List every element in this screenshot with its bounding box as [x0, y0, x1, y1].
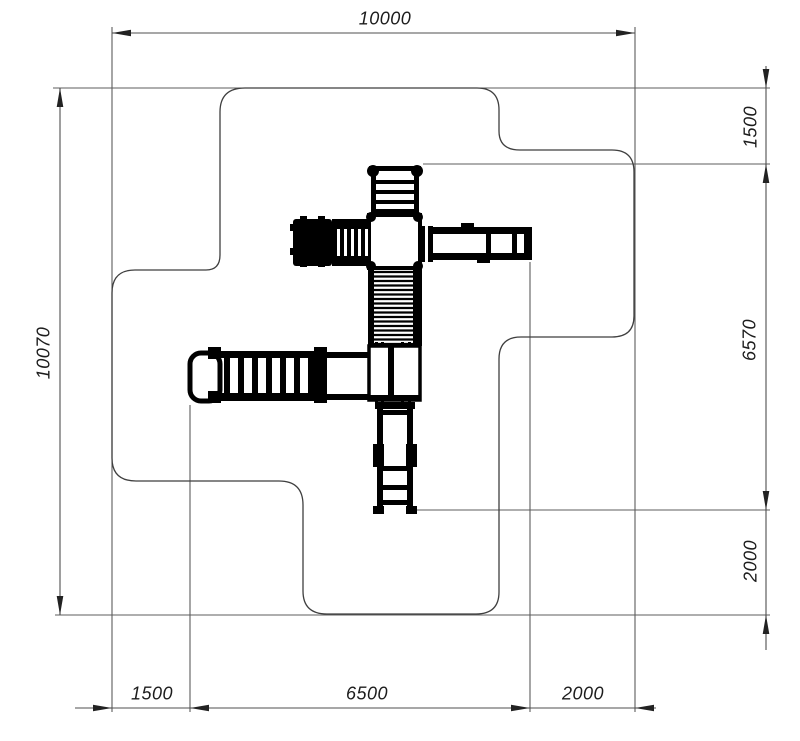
- roofed-house: [290, 216, 332, 267]
- dimension-arrows: [57, 30, 770, 712]
- rung-bridge: [332, 219, 369, 266]
- stairs-arm: [190, 347, 369, 403]
- central-tower: [366, 212, 423, 271]
- dimension-label-bottom-middle: 6500: [346, 684, 388, 705]
- plan-drawing: [0, 0, 800, 741]
- dimension-label-right-bottom: 2000: [741, 540, 762, 582]
- climb-ramp: [368, 268, 422, 346]
- dimension-label-left-height: 10070: [34, 327, 55, 380]
- dimension-label-right-top: 1500: [741, 106, 762, 148]
- extension-lines: [53, 27, 770, 712]
- dimension-label-bottom-left: 1500: [131, 684, 173, 705]
- lower-platform: [369, 342, 420, 405]
- dimension-lines: [60, 33, 766, 708]
- slide-arm: [421, 223, 532, 263]
- dimension-label-top-width: 10000: [359, 9, 412, 30]
- bottom-ladder-arm: [373, 402, 417, 514]
- drawing-canvas: 10000 10070 1500 6570 2000 1500 6500 200…: [0, 0, 800, 741]
- dimension-label-bottom-right: 2000: [562, 684, 604, 705]
- top-ladder-arm: [367, 165, 423, 216]
- dimension-label-right-middle: 6570: [740, 319, 761, 361]
- equipment: [190, 165, 532, 514]
